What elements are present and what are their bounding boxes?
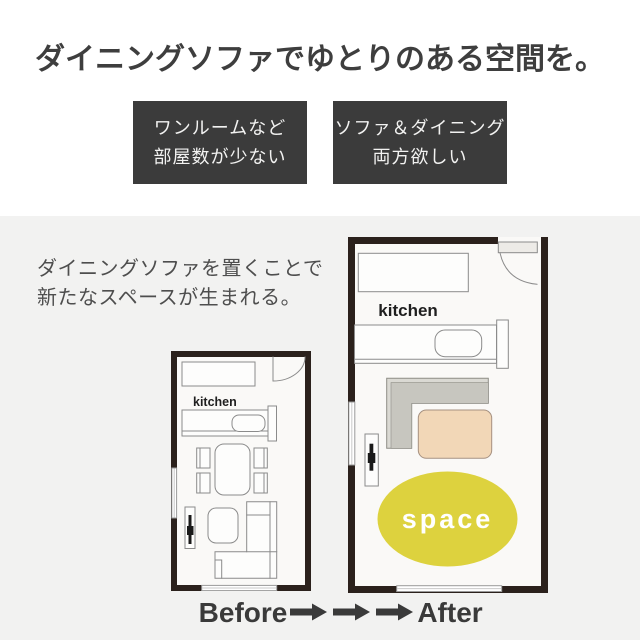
before-label: Before	[199, 597, 288, 629]
before-window-left	[172, 468, 177, 518]
after-kitchen-counter	[358, 253, 468, 291]
before-to-after-arrows	[290, 602, 416, 622]
before-fridge	[268, 406, 277, 441]
space-label: space	[402, 504, 494, 534]
tag-box-sofa-dining: ソファ＆ダイニング 両方欲しい	[333, 101, 507, 184]
after-dining-table	[418, 410, 491, 458]
right-arrow-icon	[290, 604, 327, 621]
after-kitchen-label: kitchen	[378, 301, 438, 320]
tag-box-line: 部屋数が少ない	[154, 143, 287, 172]
tag-box-line: ワンルームなど	[154, 114, 286, 143]
page-title: ダイニングソファでゆとりのある空間を。	[0, 34, 640, 78]
before-coffee-table	[208, 508, 238, 543]
before-window-bottom	[202, 585, 277, 590]
description-line: 新たなスペースが生まれる。	[37, 284, 323, 313]
infographic-page: ダイニングソファでゆとりのある空間を。 ワンルームなど 部屋数が少ない ソファ＆…	[0, 0, 640, 640]
after-floor-plan: kitchen	[348, 237, 548, 593]
before-kitchen-label: kitchen	[193, 395, 237, 409]
after-window-bottom	[397, 586, 502, 592]
description-text: ダイニングソファを置くことで 新たなスペースが生まれる。	[37, 255, 323, 313]
right-arrow-icon	[376, 604, 413, 621]
after-label: After	[417, 597, 482, 629]
tag-box-line: ソファ＆ダイニング	[335, 114, 506, 143]
after-sink	[435, 330, 482, 357]
after-window-left	[349, 402, 355, 465]
before-kitchen-counter	[182, 362, 255, 386]
description-line: ダイニングソファを置くことで	[37, 255, 323, 284]
after-fridge	[497, 320, 509, 368]
tag-box-line: 両方欲しい	[373, 143, 468, 172]
after-door-leaf	[498, 242, 537, 253]
right-arrow-icon	[333, 604, 370, 621]
before-sink	[232, 415, 265, 432]
tag-box-one-room: ワンルームなど 部屋数が少ない	[133, 101, 307, 184]
before-floor-plan: kitchen	[171, 351, 311, 591]
before-dining-table	[215, 444, 250, 495]
